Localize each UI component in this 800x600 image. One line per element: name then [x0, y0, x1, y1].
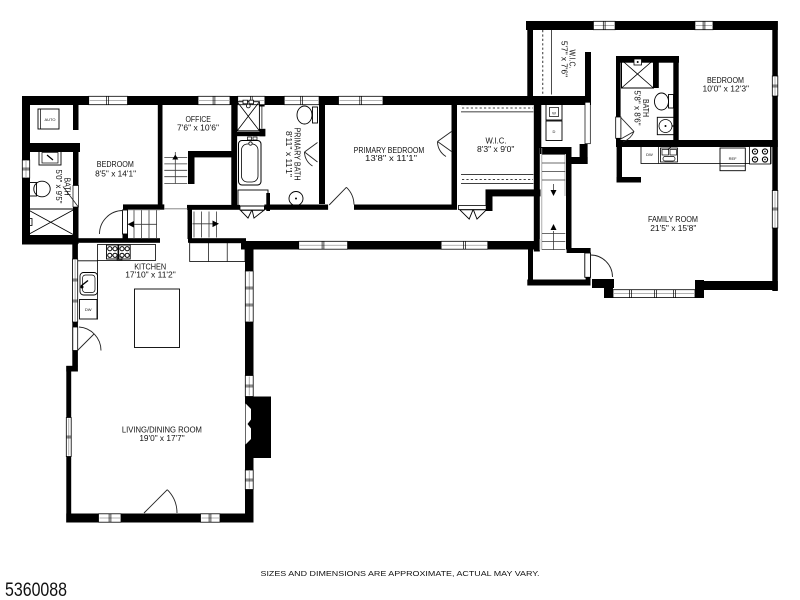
- svg-text:5'0" x 9'5": 5'0" x 9'5": [54, 170, 64, 204]
- svg-text:W: W: [552, 111, 556, 116]
- svg-text:17'10" x 11'2": 17'10" x 11'2": [125, 270, 176, 280]
- svg-text:8'5" x 14'1": 8'5" x 14'1": [95, 168, 136, 178]
- svg-text:SIZES AND DIMENSIONS ARE APPRO: SIZES AND DIMENSIONS ARE APPROXIMATE, AC…: [261, 569, 540, 578]
- svg-text:5'7" x 7'6": 5'7" x 7'6": [559, 41, 569, 77]
- svg-text:10'0" x 12'3": 10'0" x 12'3": [703, 84, 750, 94]
- svg-text:8'3" x 9'0": 8'3" x 9'0": [477, 144, 515, 154]
- svg-text:19'0" x 17'7": 19'0" x 17'7": [139, 433, 184, 443]
- svg-text:7'6" x 10'6": 7'6" x 10'6": [177, 122, 219, 132]
- svg-text:DW: DW: [646, 152, 653, 157]
- svg-text:5'8" x 8'6": 5'8" x 8'6": [633, 90, 643, 125]
- svg-text:5360088: 5360088: [5, 580, 67, 600]
- svg-text:21'5" x 15'8": 21'5" x 15'8": [650, 223, 696, 233]
- svg-text:13'8" x 11'1": 13'8" x 11'1": [365, 153, 417, 163]
- svg-text:AUTO: AUTO: [44, 117, 55, 122]
- svg-text:DW: DW: [85, 307, 92, 312]
- svg-text:D: D: [553, 129, 556, 134]
- svg-text:REF: REF: [729, 156, 738, 161]
- svg-text:8'11" x 11'1": 8'11" x 11'1": [284, 131, 294, 177]
